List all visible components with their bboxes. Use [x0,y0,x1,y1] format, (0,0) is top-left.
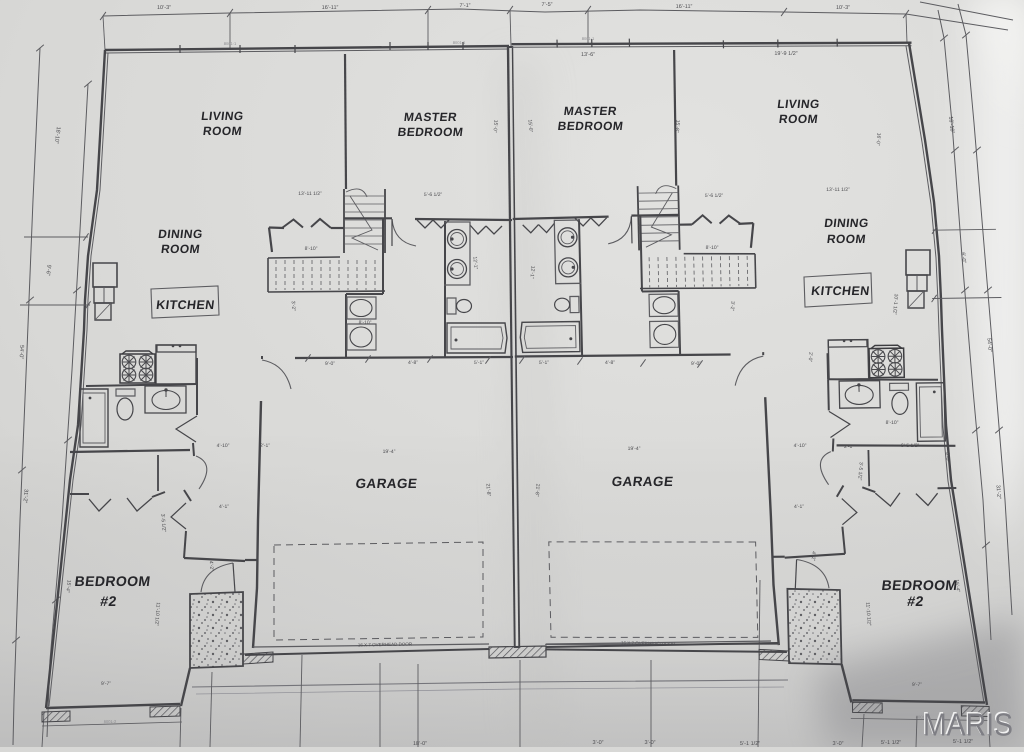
svg-text:19’-4”: 19’-4” [383,449,396,455]
svg-text:5’-1”: 5’-1” [539,360,549,366]
svg-text:GARAGE: GARAGE [611,474,674,489]
svg-text:KITCHEN: KITCHEN [810,284,870,298]
svg-text:19’-9 1/2”: 19’-9 1/2” [774,51,797,57]
svg-text:7’-1”: 7’-1” [459,3,470,9]
svg-text:3’-2”: 3’-2” [290,301,297,312]
svg-text:13’-11 1/2”: 13’-11 1/2” [298,191,322,197]
svg-text:15’-0”: 15’-0” [491,119,498,133]
svg-text:8’-10”: 8’-10” [305,246,318,252]
svg-text:7’-5”: 7’-5” [541,2,552,8]
svg-text:#2: #2 [906,593,924,609]
svg-text:9’-0”: 9’-0” [325,361,335,367]
svg-text:54’-0”: 54’-0” [986,338,993,353]
svg-text:5’-1”: 5’-1” [474,360,484,366]
svg-text:9’-0”: 9’-0” [691,361,701,367]
svg-text:2’-0”: 2’-0” [807,352,814,363]
svg-text:31’-2”: 31’-2” [21,489,28,504]
svg-text:3’-0”: 3’-0” [644,740,655,746]
svg-text:8001-2: 8001-2 [104,719,117,724]
svg-text:BEDROOM: BEDROOM [557,119,624,133]
svg-text:4’-10”: 4’-10” [794,443,807,449]
svg-text:5’-1 1/2”: 5’-1 1/2” [740,741,760,747]
svg-text:DINING: DINING [157,227,203,241]
svg-text:2’-1”: 2’-1” [260,443,270,449]
svg-text:5’-1 1/2”: 5’-1 1/2” [881,740,901,746]
svg-text:4’-8”: 4’-8” [605,360,615,366]
svg-text:16’-0”: 16’-0” [874,132,881,146]
svg-text:5’-6 1/2”: 5’-6 1/2” [424,192,443,198]
svg-text:4’-1”: 4’-1” [219,504,229,510]
svg-text:31’-2”: 31’-2” [995,485,1002,500]
svg-text:MASTER: MASTER [563,104,618,118]
svg-text:8’-10”: 8’-10” [359,320,372,326]
svg-text:18’-0”: 18’-0” [413,741,427,747]
svg-text:16’-11”: 16’-11” [676,4,693,10]
svg-text:10’-3”: 10’-3” [836,5,850,11]
svg-text:12’-1”: 12’-1” [528,265,535,279]
svg-text:3’-0”: 3’-0” [832,741,843,747]
svg-text:8001-1: 8001-1 [582,36,595,41]
svg-text:4’-8”: 4’-8” [408,360,418,366]
svg-text:9’-7”: 9’-7” [101,681,111,687]
svg-text:15’-0”: 15’-0” [526,119,533,133]
svg-text:ROOM: ROOM [202,124,243,138]
svg-text:8’-10”: 8’-10” [886,420,899,426]
svg-text:ROOM: ROOM [160,242,201,256]
svg-text:3’-0”: 3’-0” [592,740,603,746]
svg-text:#2: #2 [99,593,117,609]
svg-text:MARIS: MARIS [923,707,1013,743]
svg-text:8001-1: 8001-1 [224,41,237,46]
svg-text:19’-4”: 19’-4” [628,446,641,452]
svg-text:3’-0”: 3’-0” [944,452,951,463]
svg-text:MASTER: MASTER [403,110,458,124]
svg-text:15’-8”: 15’-8” [673,119,680,133]
svg-text:KITCHEN: KITCHEN [155,298,215,312]
svg-text:4’-10”: 4’-10” [217,443,230,449]
svg-text:LIVING: LIVING [200,109,244,123]
svg-text:12’-1”: 12’-1” [471,256,478,270]
svg-text:ROOM: ROOM [826,232,867,246]
svg-text:6’-0”: 6’-0” [959,252,966,264]
svg-text:21’-8”: 21’-8” [533,483,540,497]
svg-text:ROOM: ROOM [778,112,819,126]
svg-text:BEDROOM: BEDROOM [881,577,959,593]
svg-text:16’-11”: 16’-11” [322,5,339,11]
svg-text:BEDROOM: BEDROOM [74,573,152,589]
svg-text:8001-1: 8001-1 [453,40,466,45]
svg-text:16 X 7 OVERHEAD DOOR: 16 X 7 OVERHEAD DOOR [358,642,413,648]
svg-text:DINING: DINING [823,216,869,230]
svg-text:3’-2”: 3’-2” [729,301,736,312]
svg-text:4’-2”: 4’-2” [810,551,817,562]
svg-text:10’-3”: 10’-3” [157,5,171,11]
svg-text:13’-6”: 13’-6” [581,52,595,58]
svg-text:21’-8”: 21’-8” [484,483,491,497]
svg-text:54’-0”: 54’-0” [18,345,25,360]
svg-text:GARAGE: GARAGE [355,476,418,491]
svg-text:8’-10”: 8’-10” [706,245,719,251]
svg-text:BEDROOM: BEDROOM [397,125,464,139]
svg-text:LIVING: LIVING [776,97,820,111]
svg-text:4’-2”: 4’-2” [208,561,215,572]
svg-text:9’-7”: 9’-7” [912,682,922,688]
svg-text:5’-6 1/2”: 5’-6 1/2” [705,193,724,199]
svg-text:4’-1”: 4’-1” [794,504,804,510]
svg-text:13’-11 1/2”: 13’-11 1/2” [826,187,850,193]
svg-text:6’-5 1/2”: 6’-5 1/2” [901,443,920,449]
svg-text:2’-1”: 2’-1” [844,444,854,450]
